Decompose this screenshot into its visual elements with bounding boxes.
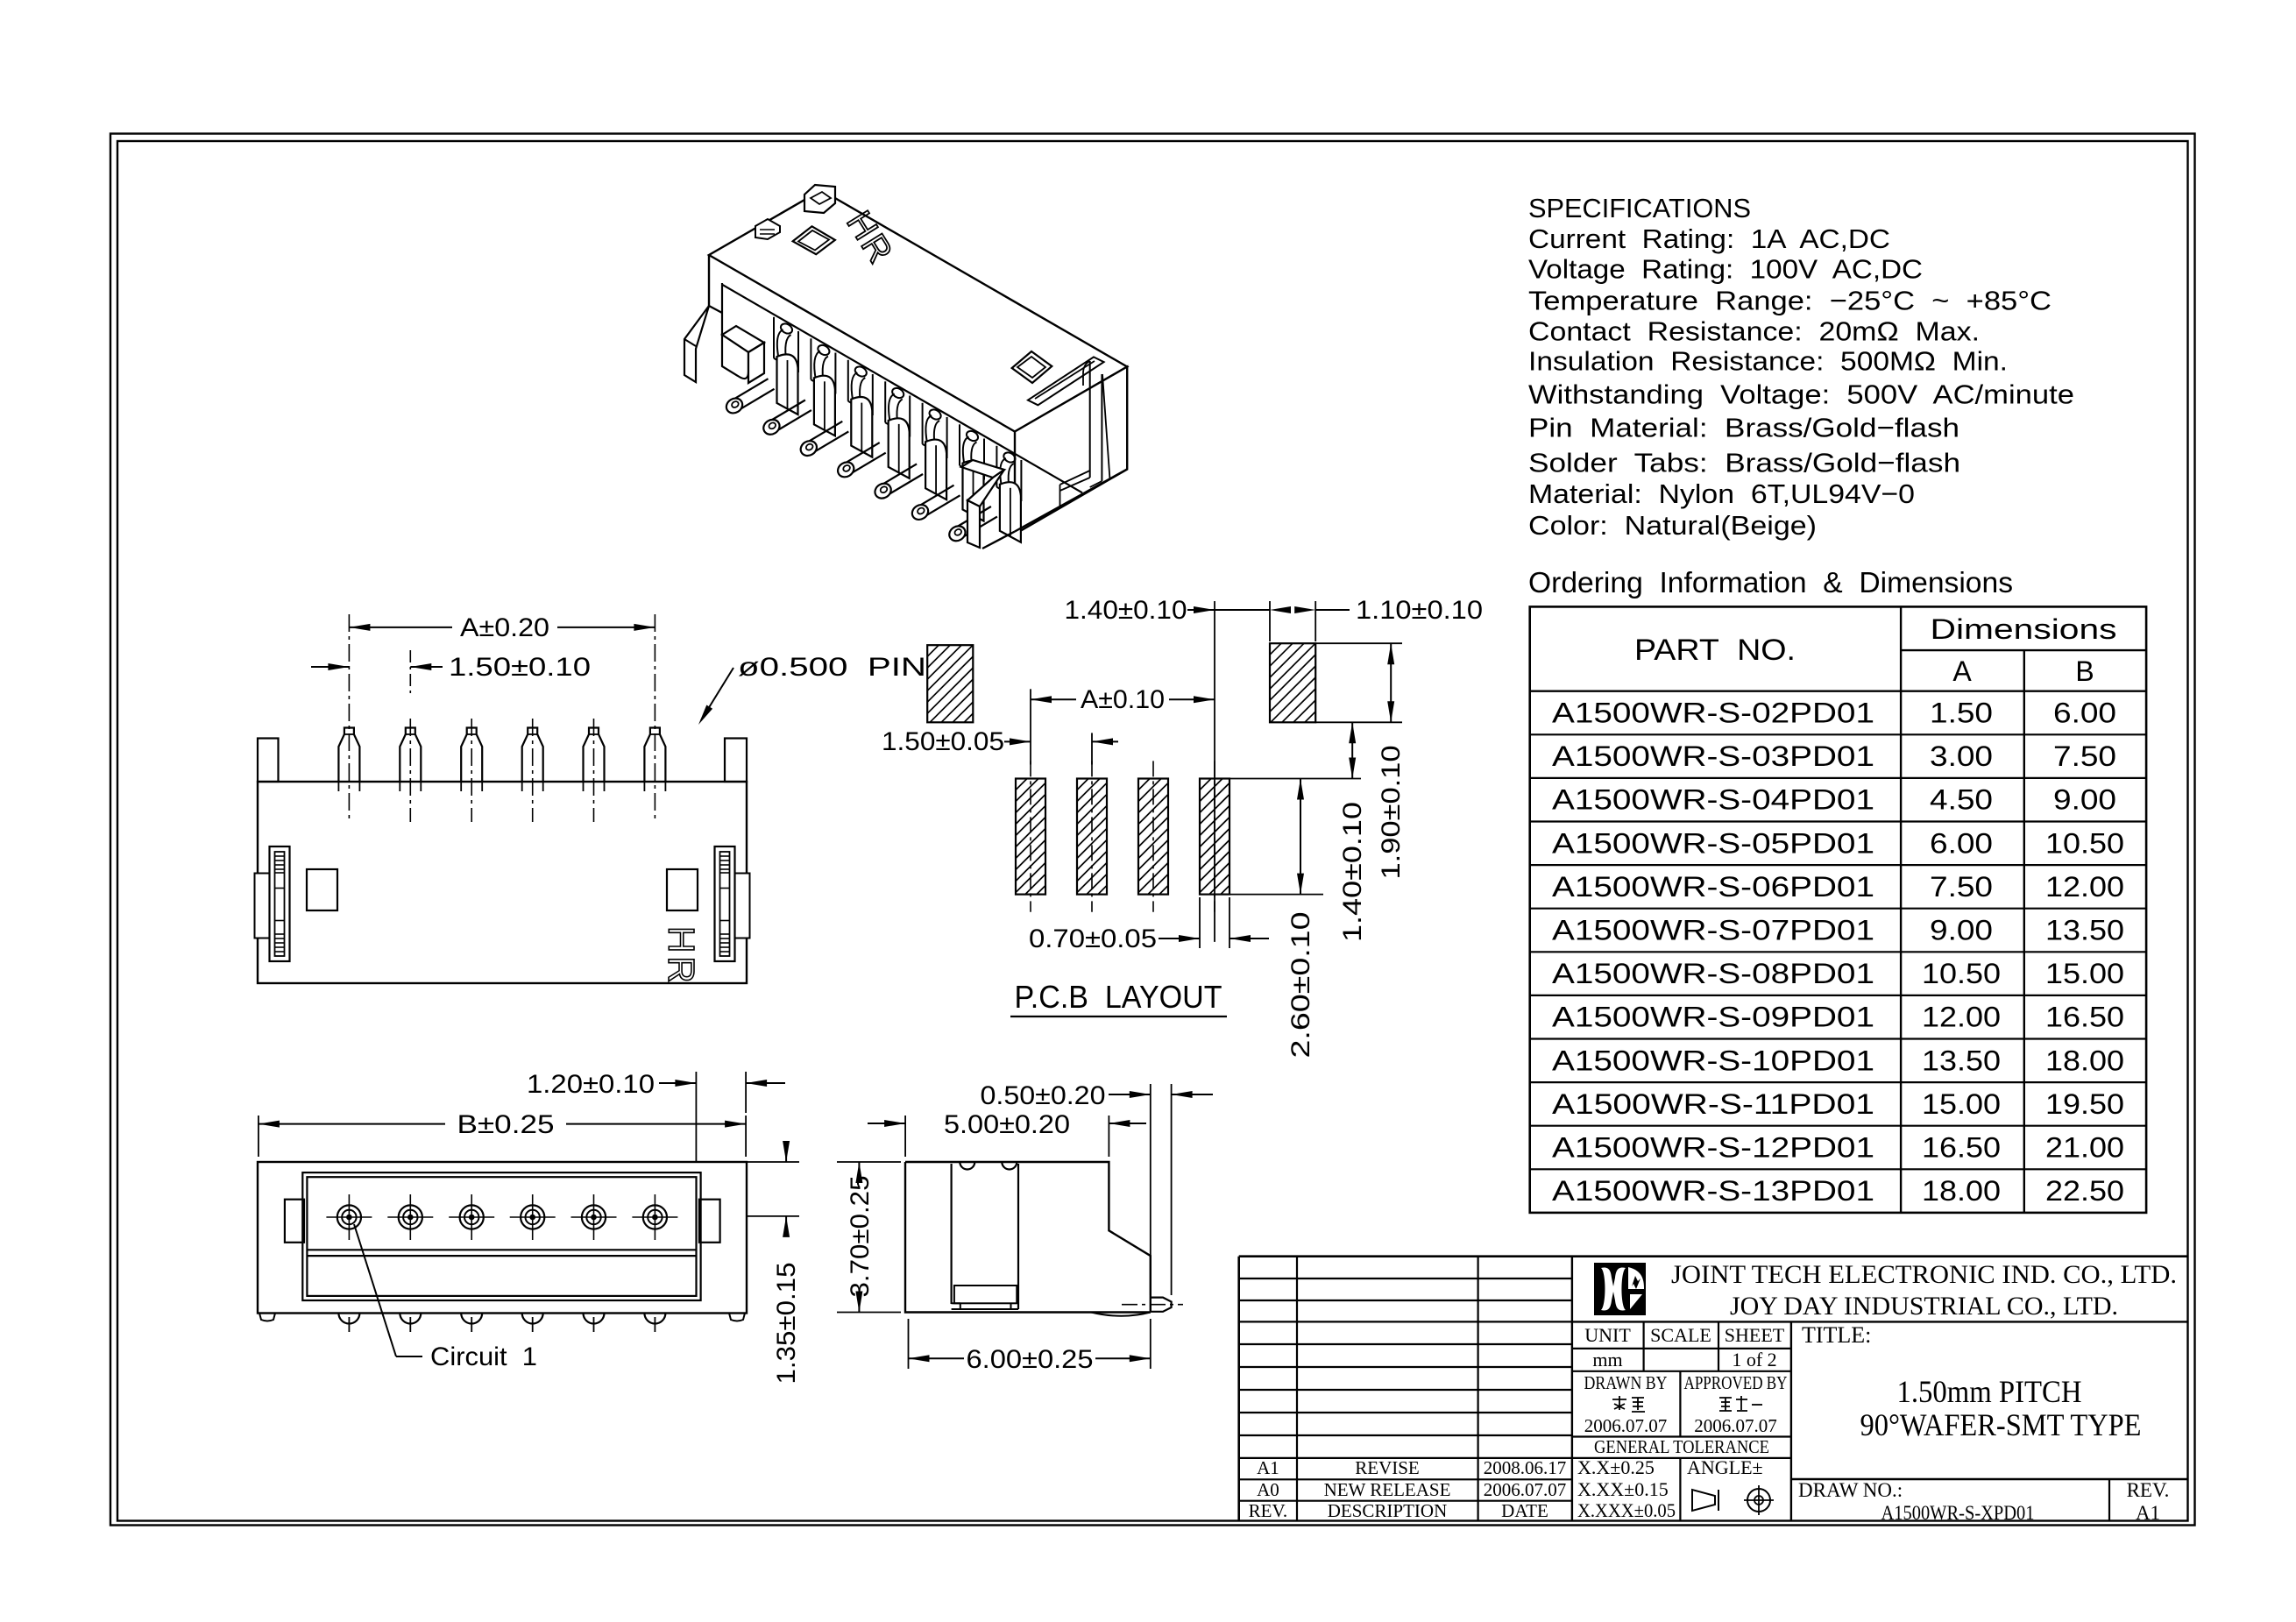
svg-text:HR: HR <box>661 926 702 987</box>
svg-text:PART NO.: PART NO. <box>1634 634 1796 667</box>
svg-text:1.50±0.05: 1.50±0.05 <box>882 727 1004 756</box>
svg-text:Voltage Rating: 100V AC,DC: Voltage Rating: 100V AC,DC <box>1528 254 1923 285</box>
svg-text:0.70±0.05: 0.70±0.05 <box>1029 924 1157 953</box>
svg-text:12.00: 12.00 <box>1922 1002 2001 1033</box>
svg-text:A0: A0 <box>1257 1479 1279 1500</box>
svg-text:10.50: 10.50 <box>2045 827 2124 859</box>
svg-text:A1500WR-S-11PD01: A1500WR-S-11PD01 <box>1552 1088 1874 1120</box>
svg-text:15.00: 15.00 <box>1922 1088 2001 1120</box>
svg-text:4.50: 4.50 <box>1930 784 1993 816</box>
svg-text:9.00: 9.00 <box>1930 915 1993 946</box>
svg-text:5.00±0.20: 5.00±0.20 <box>944 1110 1070 1139</box>
svg-text:JOINT TECH ELECTRONIC IND. CO.: JOINT TECH ELECTRONIC IND. CO., LTD. <box>1671 1260 2177 1289</box>
svg-text:3.70±0.25: 3.70±0.25 <box>846 1176 875 1298</box>
svg-text:22.50: 22.50 <box>2045 1175 2124 1207</box>
svg-text:REV.: REV. <box>2127 1479 2170 1501</box>
svg-text:2006.07.07: 2006.07.07 <box>1484 1479 1567 1500</box>
svg-text:2006.07.07: 2006.07.07 <box>1694 1415 1777 1436</box>
svg-text:21.00: 21.00 <box>2045 1132 2124 1164</box>
svg-text:A1500WR-S-09PD01: A1500WR-S-09PD01 <box>1552 1002 1874 1033</box>
svg-text:A±0.10: A±0.10 <box>1081 685 1165 714</box>
svg-text:DATE: DATE <box>1501 1500 1548 1521</box>
svg-text:UNIT: UNIT <box>1584 1324 1631 1346</box>
svg-text:1.90±0.10: 1.90±0.10 <box>1377 746 1406 880</box>
svg-text:X.X±0.25: X.X±0.25 <box>1577 1456 1655 1478</box>
svg-text:6.00: 6.00 <box>1930 827 1993 859</box>
svg-text:1.40±0.10: 1.40±0.10 <box>1065 596 1187 625</box>
svg-text:NEW RELEASE: NEW RELEASE <box>1324 1479 1451 1500</box>
svg-text:A1500WR-S-10PD01: A1500WR-S-10PD01 <box>1552 1045 1874 1076</box>
svg-text:9.00: 9.00 <box>2053 784 2116 816</box>
svg-text:A±0.20: A±0.20 <box>460 613 549 642</box>
svg-text:A1500WR-S-03PD01: A1500WR-S-03PD01 <box>1552 740 1874 772</box>
svg-text:ø0.500 PIN: ø0.500 PIN <box>738 653 926 682</box>
svg-text:Current Rating: 1A AC,DC: Current Rating: 1A AC,DC <box>1528 223 1890 254</box>
svg-text:13.50: 13.50 <box>2045 915 2124 946</box>
svg-text:12.00: 12.00 <box>2045 871 2124 903</box>
svg-text:6.00±0.25: 6.00±0.25 <box>967 1345 1094 1374</box>
svg-text:A1500WR-S-05PD01: A1500WR-S-05PD01 <box>1552 827 1874 859</box>
svg-text:Dimensions: Dimensions <box>1931 613 2117 645</box>
svg-text:1.50±0.10: 1.50±0.10 <box>449 653 591 682</box>
svg-text:1.20±0.10: 1.20±0.10 <box>527 1070 655 1099</box>
svg-text:1.40±0.10: 1.40±0.10 <box>1338 802 1367 942</box>
svg-text:Material: Nylon 6T,UL94V−0: Material: Nylon 6T,UL94V−0 <box>1528 478 1915 509</box>
svg-text:Withstanding Voltage: 500V: Withstanding Voltage: 500V AC/minute <box>1528 379 2074 410</box>
svg-text:APPROVED BY: APPROVED BY <box>1684 1372 1788 1393</box>
svg-text:A: A <box>1952 655 1972 687</box>
svg-text:SPECIFICATIONS: SPECIFICATIONS <box>1528 193 1751 223</box>
svg-text:B±0.25: B±0.25 <box>457 1110 555 1139</box>
svg-text:1.50: 1.50 <box>1930 698 1993 729</box>
svg-text:A1500WR-S-07PD01: A1500WR-S-07PD01 <box>1552 915 1874 946</box>
svg-text:X.XXX±0.05: X.XXX±0.05 <box>1577 1499 1676 1521</box>
svg-text:Circuit 1: Circuit 1 <box>430 1342 537 1371</box>
svg-text:A1500WR-S-06PD01: A1500WR-S-06PD01 <box>1552 871 1874 903</box>
svg-text:REVISE: REVISE <box>1355 1457 1420 1478</box>
svg-text:90°WAFER-SMT TYPE: 90°WAFER-SMT TYPE <box>1860 1407 2142 1442</box>
svg-text:13.50: 13.50 <box>1922 1045 2001 1076</box>
svg-text:2.60±0.10: 2.60±0.10 <box>1286 912 1315 1059</box>
svg-text:DRAW NO.:: DRAW NO.: <box>1798 1479 1903 1501</box>
svg-text:2008.06.17: 2008.06.17 <box>1484 1457 1567 1478</box>
svg-text:1.35±0.15: 1.35±0.15 <box>772 1263 801 1385</box>
svg-text:P.C.B LAYOUT: P.C.B LAYOUT <box>1015 979 1222 1015</box>
svg-text:16.50: 16.50 <box>2045 1002 2124 1033</box>
svg-text:18.00: 18.00 <box>1922 1175 2001 1207</box>
svg-text:10.50: 10.50 <box>1922 958 2001 989</box>
svg-text:mm: mm <box>1592 1349 1622 1371</box>
svg-text:SCALE: SCALE <box>1650 1324 1711 1346</box>
svg-text:DESCRIPTION: DESCRIPTION <box>1328 1500 1448 1521</box>
svg-text:Color: Natural(Beige): Color: Natural(Beige) <box>1528 510 1817 541</box>
svg-text:7.50: 7.50 <box>2053 740 2116 772</box>
svg-text:Insulation Resistance: 500MΩ: Insulation Resistance: 500MΩ Min. <box>1528 346 2008 377</box>
svg-text:Solder Tabs: Brass/Gold−flas: Solder Tabs: Brass/Gold−flash <box>1528 448 1960 478</box>
svg-text:2006.07.07: 2006.07.07 <box>1584 1415 1668 1436</box>
svg-text:ANGLE±: ANGLE± <box>1687 1456 1763 1478</box>
svg-text:7.50: 7.50 <box>1930 871 1993 903</box>
svg-text:15.00: 15.00 <box>2045 958 2124 989</box>
svg-text:A1500WR-S-13PD01: A1500WR-S-13PD01 <box>1552 1175 1874 1207</box>
svg-text:GENERAL TOLERANCE: GENERAL TOLERANCE <box>1594 1436 1769 1457</box>
svg-text:A1500WR-S-08PD01: A1500WR-S-08PD01 <box>1552 958 1874 989</box>
svg-text:19.50: 19.50 <box>2045 1088 2124 1120</box>
svg-text:A1: A1 <box>2136 1502 2160 1524</box>
svg-text:1.10±0.10: 1.10±0.10 <box>1356 596 1483 625</box>
svg-text:JOY DAY INDUSTRIAL CO., LTD.: JOY DAY INDUSTRIAL CO., LTD. <box>1730 1292 2118 1321</box>
svg-text:6.00: 6.00 <box>2053 698 2116 729</box>
svg-text:3.00: 3.00 <box>1930 740 1993 772</box>
svg-text:A1: A1 <box>1257 1457 1279 1478</box>
svg-text:A1500WR-S-XPD01: A1500WR-S-XPD01 <box>1881 1502 2035 1524</box>
svg-text:TITLE:: TITLE: <box>1802 1322 1871 1348</box>
svg-text:A1500WR-S-04PD01: A1500WR-S-04PD01 <box>1552 784 1874 816</box>
svg-text:Pin Material: Brass/Gold−fla: Pin Material: Brass/Gold−flash <box>1528 413 1959 443</box>
svg-text:B: B <box>2075 655 2094 687</box>
svg-text:X.XX±0.15: X.XX±0.15 <box>1577 1478 1669 1500</box>
svg-text:18.00: 18.00 <box>2045 1045 2124 1076</box>
svg-text:Temperature Range: −25°C ~: Temperature Range: −25°C ~ +85°C <box>1528 286 2052 316</box>
svg-text:0.50±0.20: 0.50±0.20 <box>981 1081 1106 1110</box>
svg-text:16.50: 16.50 <box>1922 1132 2001 1164</box>
svg-text:SHEET: SHEET <box>1725 1324 1785 1346</box>
svg-text:A1500WR-S-12PD01: A1500WR-S-12PD01 <box>1552 1132 1874 1164</box>
svg-text:Ordering Information & Dime: Ordering Information & Dimensions <box>1528 566 2013 599</box>
svg-text:1 of 2: 1 of 2 <box>1732 1349 1776 1371</box>
svg-text:Contact Resistance: 20mΩ Ma: Contact Resistance: 20mΩ Max. <box>1528 316 1980 347</box>
svg-text:REV.: REV. <box>1249 1500 1288 1521</box>
svg-text:DRAWN BY: DRAWN BY <box>1584 1372 1668 1393</box>
svg-text:1.50mm PITCH: 1.50mm PITCH <box>1897 1374 2082 1409</box>
svg-text:A1500WR-S-02PD01: A1500WR-S-02PD01 <box>1552 698 1874 729</box>
